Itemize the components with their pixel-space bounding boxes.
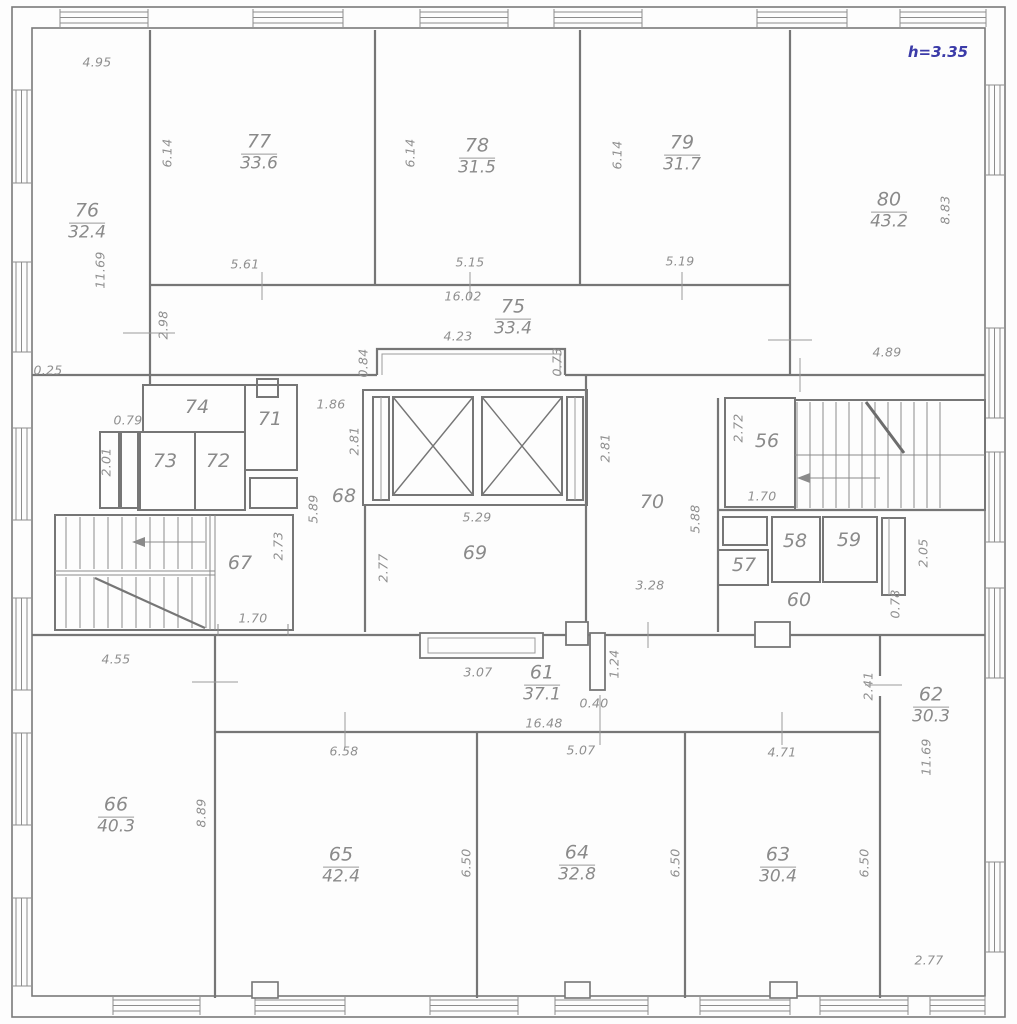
floor-plan: 7632.47733.67831.57931.78043.27533.46640… (0, 0, 1017, 1024)
room-label-56: 56 (755, 430, 779, 452)
corridor-details (420, 622, 790, 690)
room-number: 62 (913, 686, 949, 708)
room-number: 78 (459, 137, 495, 159)
room-area: 32.8 (558, 866, 596, 885)
window-hatch-right (986, 85, 1004, 952)
room-label-75: 7533.4 (494, 298, 532, 339)
room-number: 65 (323, 846, 359, 868)
room-label-76: 7632.4 (68, 202, 106, 243)
dimension-label: 5.19 (665, 254, 694, 269)
room-number: 80 (871, 191, 907, 213)
dimension-label: 8.83 (938, 195, 953, 224)
dimension-label: 4.55 (101, 652, 130, 667)
dimension-label: 2.81 (598, 433, 613, 462)
room-label-57: 57 (732, 554, 756, 576)
dimension-label: 2.73 (271, 531, 286, 560)
room-area: 33.6 (240, 155, 278, 174)
dimension-label: 11.69 (919, 738, 934, 775)
dimension-label: 3.07 (463, 665, 492, 680)
room-label-64: 6432.8 (558, 844, 596, 885)
room-label-79: 7931.7 (663, 134, 701, 175)
room-area: 32.4 (68, 224, 106, 243)
dimension-label: 0.73 (550, 347, 565, 376)
room-area: 43.2 (870, 213, 908, 232)
dimension-label: 2.05 (916, 538, 931, 567)
dimension-label: 1.86 (316, 397, 345, 412)
window-hatch-top (60, 9, 986, 27)
room-label-63: 6330.4 (759, 846, 797, 887)
room-label-67: 67 (228, 552, 252, 574)
room-label-66: 6640.3 (97, 796, 135, 837)
room-label-61: 6137.1 (523, 664, 561, 705)
dimension-label: 11.69 (93, 251, 108, 288)
dimension-label: 6.14 (403, 138, 418, 167)
room-number: 77 (241, 133, 277, 155)
dimension-label: 4.23 (443, 329, 472, 344)
room-label-59: 59 (837, 529, 861, 551)
dimension-label: 6.50 (459, 848, 474, 877)
room-label-68: 68 (332, 485, 356, 507)
room-label-70: 70 (640, 491, 664, 513)
dimension-label: 0.25 (33, 363, 62, 378)
room-number: 76 (69, 202, 105, 224)
room-area: 31.7 (663, 156, 701, 175)
dimension-label: 5.07 (566, 743, 595, 758)
elevator-shafts (363, 390, 587, 505)
dimension-label: 6.58 (329, 744, 358, 759)
dimension-label: 6.50 (857, 848, 872, 877)
dimension-label: 2.77 (376, 553, 391, 582)
room-label-80: 8043.2 (870, 191, 908, 232)
window-hatch-bottom (113, 997, 985, 1015)
room-label-60: 60 (787, 589, 811, 611)
room-label-58: 58 (783, 530, 807, 552)
room-area: 30.3 (912, 708, 950, 727)
dimension-label: 5.88 (688, 504, 703, 533)
dimension-label: 3.28 (635, 578, 664, 593)
dimension-label: 0.40 (579, 696, 608, 711)
dimension-label: 5.61 (230, 257, 259, 272)
dimension-label: 1.70 (747, 489, 776, 504)
dimension-label: 5.89 (306, 494, 321, 523)
room-number: 63 (760, 846, 796, 868)
dimension-label: 2.98 (156, 310, 171, 339)
dimension-label: 2.72 (731, 413, 746, 442)
room-area: 31.5 (458, 159, 496, 178)
dimension-label: 2.77 (914, 953, 943, 968)
room-label-71: 71 (258, 408, 282, 430)
ceiling-height-note: h=3.35 (908, 43, 968, 61)
room-area: 33.4 (494, 320, 532, 339)
dimension-label: 5.29 (462, 510, 491, 525)
room-number: 66 (98, 796, 134, 818)
dimension-label: 2.81 (347, 426, 362, 455)
room-area: 37.1 (523, 686, 561, 705)
dimension-label: 16.02 (444, 289, 481, 304)
dimension-label: 2.01 (99, 447, 114, 476)
dimension-label: 6.14 (610, 140, 625, 169)
dimension-label: 4.71 (767, 745, 796, 760)
room-area: 42.4 (322, 868, 360, 887)
dimension-label: 0.78 (888, 589, 903, 618)
room-number: 64 (559, 844, 595, 866)
dimension-label: 5.15 (455, 255, 484, 270)
room-label-77: 7733.6 (240, 133, 278, 174)
dimension-label: 0.84 (356, 348, 371, 377)
lobby-bump-inner-line (382, 354, 560, 375)
room-label-62: 6230.3 (912, 686, 950, 727)
dimension-label: 1.70 (238, 611, 267, 626)
dimension-label: 16.48 (525, 716, 562, 731)
room-area: 30.4 (759, 868, 797, 887)
room-number: 79 (664, 134, 700, 156)
room-number: 75 (495, 298, 531, 320)
dimension-label: 0.79 (113, 413, 142, 428)
room-number: 61 (524, 664, 560, 686)
dimension-label: 6.50 (668, 848, 683, 877)
room-label-78: 7831.5 (458, 137, 496, 178)
dimension-label: 4.89 (872, 345, 901, 360)
window-hatch-left (13, 90, 31, 986)
room-label-74: 74 (185, 396, 209, 418)
room-label-69: 69 (463, 542, 487, 564)
room-label-65: 6542.4 (322, 846, 360, 887)
room-label-72: 72 (206, 450, 230, 472)
dimension-label: 2.41 (861, 671, 876, 700)
room-area: 40.3 (97, 818, 135, 837)
room-label-73: 73 (153, 450, 177, 472)
dimension-label: 4.95 (82, 55, 111, 70)
dimension-label: 6.14 (160, 138, 175, 167)
dimension-label: 8.89 (194, 798, 209, 827)
dimension-label: 1.24 (607, 649, 622, 678)
